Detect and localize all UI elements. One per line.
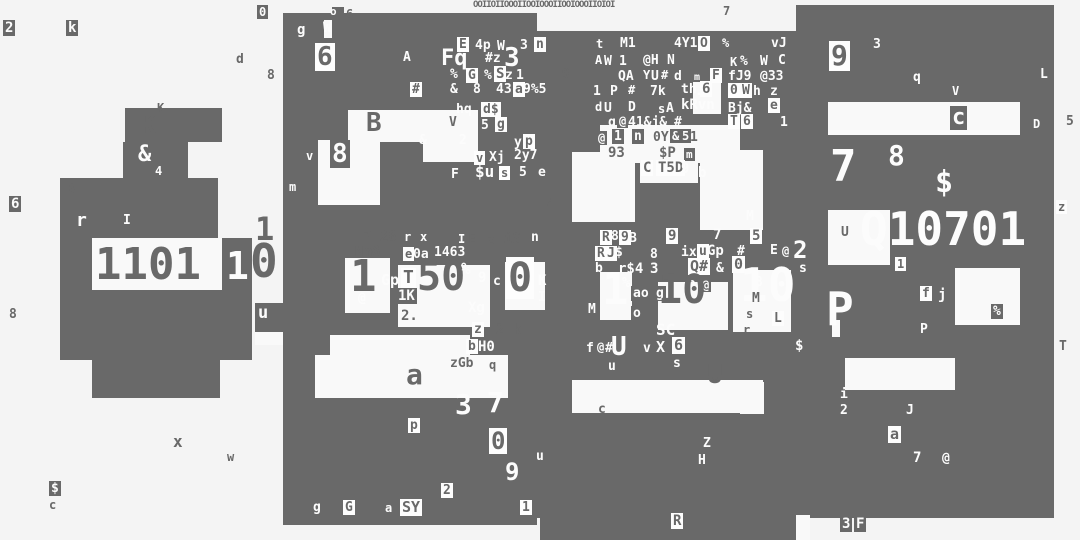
glyph: W bbox=[760, 55, 768, 68]
glyph: $P bbox=[659, 146, 676, 160]
dark-block bbox=[60, 290, 252, 360]
glyph: f bbox=[920, 286, 932, 301]
light-block bbox=[740, 382, 764, 414]
glyph: 2. bbox=[401, 309, 418, 323]
glyph: m bbox=[287, 180, 298, 194]
light-block bbox=[796, 515, 810, 540]
glyph: % bbox=[450, 68, 458, 81]
glyph: 43 bbox=[496, 83, 512, 96]
glyph: n bbox=[632, 129, 644, 144]
glyph: 1 bbox=[612, 129, 624, 144]
glyph: s bbox=[799, 262, 807, 275]
glyph: T bbox=[1059, 340, 1067, 353]
glyph: I bbox=[538, 291, 546, 304]
light-block bbox=[255, 332, 283, 345]
glyph: G bbox=[466, 68, 478, 83]
glyph: b bbox=[698, 166, 706, 180]
glyph: g bbox=[313, 501, 321, 514]
glyph: 6 bbox=[672, 337, 685, 354]
glyph: U bbox=[604, 102, 612, 115]
glyph: iS bbox=[504, 232, 521, 246]
glyph: 4 bbox=[155, 165, 162, 177]
glyph: 6 bbox=[346, 8, 353, 20]
glyph: 1 bbox=[520, 500, 532, 515]
glyph: 7 bbox=[911, 450, 923, 466]
glyph: h bbox=[753, 85, 761, 98]
glyph: g bbox=[608, 116, 616, 129]
glyph: u bbox=[536, 450, 544, 463]
glyph: 1 bbox=[619, 55, 627, 68]
glyph: r bbox=[402, 230, 413, 244]
glyph: z bbox=[770, 85, 778, 98]
glyph: H bbox=[698, 454, 706, 467]
barcode-glyph-row: OOIIOIIOOOIIOOIOOOIIOOIOOOIIOIOI bbox=[473, 1, 614, 10]
glyph: 8 bbox=[650, 248, 658, 261]
glyph: 5 bbox=[750, 228, 762, 244]
glyph: 41&j& bbox=[628, 116, 667, 129]
glyph: v bbox=[306, 150, 313, 162]
glyph: A bbox=[666, 102, 674, 115]
glyph: D bbox=[626, 100, 638, 115]
glyph: U bbox=[707, 362, 723, 388]
glyph: 8 bbox=[473, 83, 481, 96]
glyph: f bbox=[586, 342, 594, 355]
glyph: 9%5 bbox=[523, 83, 546, 96]
glyph: P bbox=[610, 85, 618, 98]
glyph: 2 bbox=[441, 483, 453, 498]
glyph: O bbox=[698, 36, 710, 51]
glyph: m bbox=[684, 148, 695, 161]
glyph: k bbox=[66, 20, 78, 36]
glyph: % bbox=[991, 304, 1003, 319]
glyph: # bbox=[659, 68, 670, 82]
glyph: K bbox=[728, 55, 739, 69]
glyph: T bbox=[401, 268, 416, 288]
glyph: u bbox=[608, 360, 616, 373]
glyph: 8 bbox=[755, 276, 763, 289]
glyph: 0 bbox=[489, 428, 507, 454]
glyph: $ bbox=[615, 246, 623, 259]
glyph: z bbox=[487, 234, 495, 247]
glyph: 10 bbox=[740, 262, 795, 308]
glyph: a bbox=[385, 502, 392, 514]
glyph: d$ bbox=[481, 102, 501, 117]
glyph: M bbox=[746, 210, 754, 223]
glyph: J bbox=[906, 404, 914, 417]
glyph: 6 bbox=[700, 81, 712, 97]
glyph: @ bbox=[617, 114, 628, 128]
glyph: g bbox=[495, 117, 507, 132]
glyph: A bbox=[403, 51, 411, 64]
glyph: 0 bbox=[506, 257, 534, 299]
glyph: 8 bbox=[267, 69, 275, 82]
glyph: z bbox=[472, 322, 484, 337]
glyph: 6 bbox=[741, 114, 753, 129]
glyph: I bbox=[456, 232, 467, 246]
glyph: u bbox=[258, 305, 268, 322]
glyph: Q10701 bbox=[860, 206, 1026, 252]
glyph: c bbox=[950, 106, 967, 130]
glyph: c bbox=[49, 499, 56, 511]
glyph: g bbox=[297, 23, 305, 37]
glyph: 6 bbox=[315, 43, 335, 71]
glyph: B bbox=[629, 232, 637, 245]
glyph: 0 bbox=[728, 83, 740, 98]
glyph: 5 bbox=[519, 166, 527, 179]
glyph: I bbox=[123, 214, 131, 227]
glyph: v bbox=[643, 342, 651, 355]
glyph: n bbox=[529, 230, 541, 245]
glyph: & bbox=[450, 83, 458, 96]
glyph: Xg bbox=[468, 301, 485, 315]
glyph: 7 bbox=[723, 5, 730, 17]
glyph: zGb bbox=[450, 357, 473, 370]
glyph: s bbox=[746, 308, 753, 320]
glyph: x bbox=[173, 434, 183, 450]
glyph: G bbox=[343, 500, 355, 515]
glyph: % bbox=[720, 36, 731, 50]
glyph: a bbox=[888, 426, 901, 443]
glyph: T bbox=[728, 114, 740, 129]
glyph: s bbox=[499, 166, 510, 180]
glyph: K bbox=[141, 113, 155, 137]
glyph: r bbox=[76, 212, 87, 230]
glyph: L bbox=[772, 311, 784, 326]
glyph: 9 bbox=[505, 460, 519, 484]
glyph: Z bbox=[703, 437, 711, 450]
dark-block bbox=[125, 108, 222, 142]
glyph: 2 bbox=[3, 20, 15, 36]
glyph: 9 bbox=[829, 41, 850, 71]
glyph: 9 bbox=[562, 68, 570, 81]
glyph: H0 bbox=[478, 340, 495, 354]
glyph: 2 k bbox=[496, 323, 521, 337]
glyph: L bbox=[1040, 68, 1048, 81]
glyph: 9 bbox=[666, 228, 678, 244]
glyph: 3 bbox=[520, 39, 528, 52]
glyph: 7 bbox=[713, 228, 721, 242]
glyph: Gp bbox=[707, 244, 724, 258]
glyph: fJ9 bbox=[728, 70, 751, 83]
glyph: o bbox=[330, 6, 337, 17]
glyph: M1 bbox=[618, 36, 638, 51]
glyph: C bbox=[641, 160, 653, 176]
glyph: E bbox=[770, 244, 778, 257]
glyph: 4Y1 bbox=[674, 37, 697, 50]
glyph: B bbox=[366, 110, 382, 136]
glyph: s bbox=[673, 357, 681, 370]
glyph: P bbox=[826, 286, 854, 332]
glyph: @ bbox=[358, 292, 366, 305]
glyph: p bbox=[408, 418, 420, 433]
glyph: o bbox=[631, 306, 643, 321]
glyph: 7 bbox=[487, 389, 504, 417]
glyph: c bbox=[598, 403, 606, 416]
glyph: r bbox=[743, 324, 750, 336]
glyph: $ bbox=[795, 339, 803, 353]
glyph: 7 bbox=[830, 145, 857, 189]
glyph: b bbox=[466, 339, 478, 354]
glyph: a bbox=[406, 361, 423, 389]
glyph: B bbox=[67, 183, 75, 196]
dark-block bbox=[540, 518, 796, 540]
glyph: C bbox=[776, 53, 788, 68]
glyph: % bbox=[461, 261, 471, 277]
glyph: W bbox=[740, 83, 752, 98]
glyph: QA bbox=[618, 70, 634, 83]
glyph: $ bbox=[935, 168, 953, 198]
glyph: 1 bbox=[516, 69, 524, 82]
glyph: E bbox=[468, 233, 476, 246]
glyph: 6 bbox=[9, 196, 21, 212]
glyph: vJ bbox=[771, 37, 787, 50]
glyph: # bbox=[674, 116, 682, 129]
glyph: 1K bbox=[396, 288, 417, 304]
glyph: 1101 bbox=[95, 243, 201, 287]
glyph: F bbox=[854, 516, 866, 532]
glyph: 7k bbox=[650, 85, 666, 98]
glyph: U bbox=[651, 70, 659, 83]
glyph: 1 bbox=[226, 247, 249, 285]
glyph: c bbox=[493, 275, 501, 288]
glyph: % bbox=[484, 69, 492, 82]
glyph: 0 bbox=[257, 5, 268, 19]
light-block bbox=[845, 358, 955, 390]
glyph: @ bbox=[942, 452, 950, 465]
glyph: % bbox=[740, 55, 748, 68]
glyph: P bbox=[920, 323, 928, 336]
glyph: Gp bbox=[381, 273, 399, 288]
glyph: K bbox=[157, 102, 164, 114]
glyph: 8 bbox=[888, 142, 905, 170]
glyph: w bbox=[227, 451, 234, 463]
glyph: kRvn bbox=[681, 98, 715, 112]
glyph: W bbox=[604, 55, 612, 68]
glitch-canvas: 2k0d8KK&4B6rI8mu1101101xw$cOOIIOIIOOOIIO… bbox=[0, 0, 1080, 540]
glyph: 0Y bbox=[653, 131, 669, 144]
glyph: d bbox=[236, 53, 244, 66]
glyph: 7 26 bbox=[363, 230, 397, 244]
glyph: z bbox=[505, 69, 513, 82]
glyph: 9 bbox=[478, 271, 486, 285]
glyph: $u bbox=[475, 164, 494, 180]
glyph: d bbox=[593, 100, 604, 114]
glyph: 9 bbox=[681, 162, 689, 176]
glyph: 2y7 bbox=[514, 149, 537, 162]
glyph: @ bbox=[596, 131, 607, 145]
glyph: 1 bbox=[602, 268, 629, 312]
glyph: t bbox=[596, 38, 603, 50]
glyph: U bbox=[841, 226, 849, 239]
glyph: N bbox=[665, 53, 677, 68]
glyph: ao bbox=[631, 286, 651, 301]
glyph: 10 bbox=[658, 270, 706, 310]
glyph: q bbox=[913, 71, 921, 84]
glyph: 50 bbox=[417, 257, 465, 297]
glyph: 3 bbox=[455, 391, 472, 419]
glyph: 8 bbox=[9, 308, 17, 321]
glyph: 1 bbox=[895, 257, 906, 271]
glyph: # bbox=[626, 83, 637, 97]
glyph: V bbox=[449, 116, 457, 129]
glyph: 8 bbox=[611, 230, 619, 243]
glyph: 1 bbox=[593, 85, 601, 98]
glyph: M bbox=[588, 303, 596, 316]
glyph: 2 bbox=[840, 404, 848, 417]
glyph: z bbox=[1056, 200, 1067, 214]
glyph: 1 bbox=[690, 131, 698, 144]
glyph: M bbox=[752, 292, 760, 305]
glyph: e bbox=[538, 166, 546, 179]
glyph: j bbox=[938, 288, 946, 302]
glyph: n bbox=[534, 37, 546, 52]
glyph: 5 bbox=[1066, 115, 1074, 128]
glyph: SC bbox=[656, 322, 675, 338]
glyph: 8 bbox=[330, 140, 350, 168]
glyph: X bbox=[656, 340, 665, 355]
glyph: 1 bbox=[780, 116, 788, 129]
light-block bbox=[828, 102, 1020, 135]
dark-block bbox=[60, 240, 93, 292]
glyph: e bbox=[768, 98, 780, 113]
glyph: 3 bbox=[840, 516, 852, 532]
glyph: A bbox=[593, 53, 604, 67]
glyph: 3 bbox=[873, 38, 881, 51]
light-block bbox=[955, 268, 1020, 325]
glyph: W bbox=[323, 21, 331, 35]
glyph: @H bbox=[641, 53, 661, 68]
dark-block bbox=[92, 360, 220, 398]
glyph: q bbox=[489, 359, 496, 371]
glyph: 5 bbox=[481, 119, 489, 132]
glyph: # bbox=[410, 82, 422, 97]
glyph: hq bbox=[456, 103, 472, 116]
glyph: & bbox=[419, 134, 427, 147]
glyph: K bbox=[538, 274, 546, 288]
glyph: @ bbox=[780, 244, 791, 258]
glyph: D bbox=[1033, 118, 1040, 130]
glyph: F bbox=[451, 168, 459, 181]
glyph: & bbox=[716, 262, 724, 275]
glyph: 2 bbox=[459, 134, 467, 147]
light-block bbox=[330, 335, 470, 357]
glyph: R bbox=[671, 513, 683, 529]
glyph: x bbox=[418, 230, 429, 244]
glyph: @33 bbox=[760, 70, 783, 83]
glyph: p bbox=[523, 134, 535, 149]
glyph: 2 bbox=[793, 238, 807, 262]
glyph: $ bbox=[49, 481, 61, 496]
glyph: 4 bbox=[547, 198, 555, 211]
glyph: U bbox=[611, 334, 627, 360]
glyph: V bbox=[952, 85, 959, 97]
glyph: #z bbox=[485, 52, 501, 65]
glyph: 93 bbox=[608, 146, 625, 160]
glyph: 1 bbox=[255, 213, 274, 245]
glyph: SY bbox=[400, 499, 422, 516]
glyph: & bbox=[138, 144, 151, 166]
glyph: i bbox=[840, 388, 848, 401]
